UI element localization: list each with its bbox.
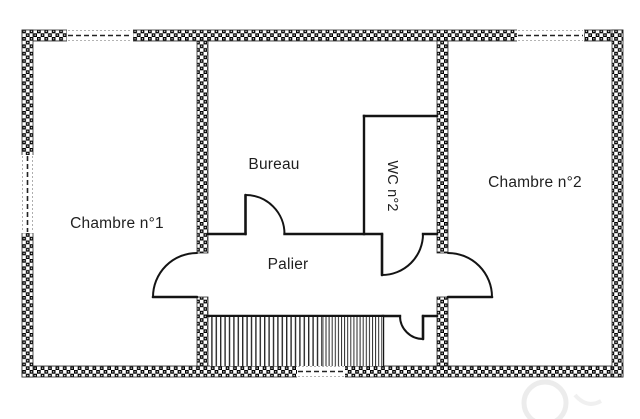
door-closet [400, 316, 423, 339]
window-left [22, 155, 34, 233]
floor-plan: Chambre n°1 Bureau WC n°2 Palier Chambre… [0, 0, 640, 419]
room-label-palier: Palier [268, 256, 309, 274]
door-wc [382, 234, 423, 275]
floor-plan-drawing [0, 0, 640, 419]
room-label-bureau: Bureau [248, 156, 299, 174]
watermark [524, 382, 601, 419]
staircase-flight-upper [323, 317, 383, 366]
room-label-wc: WC n°2 [384, 160, 400, 211]
window-bottom [297, 366, 345, 378]
wall-middle-left-lower [197, 297, 208, 366]
staircase [210, 317, 383, 366]
window-top-left [67, 30, 133, 42]
door-chambre2 [448, 253, 492, 297]
wall-middle-left-upper [197, 41, 208, 253]
door-chambre1 [153, 253, 197, 297]
wall-middle-right-upper [437, 41, 448, 253]
room-label-chambre1: Chambre n°1 [70, 215, 164, 233]
staircase-flight-lower [210, 317, 323, 366]
door-bureau [246, 195, 285, 234]
wall-exterior-right [612, 30, 623, 377]
room-label-chambre2: Chambre n°2 [488, 174, 582, 192]
wall-middle-right-lower [437, 297, 448, 366]
window-top-right [517, 30, 584, 42]
